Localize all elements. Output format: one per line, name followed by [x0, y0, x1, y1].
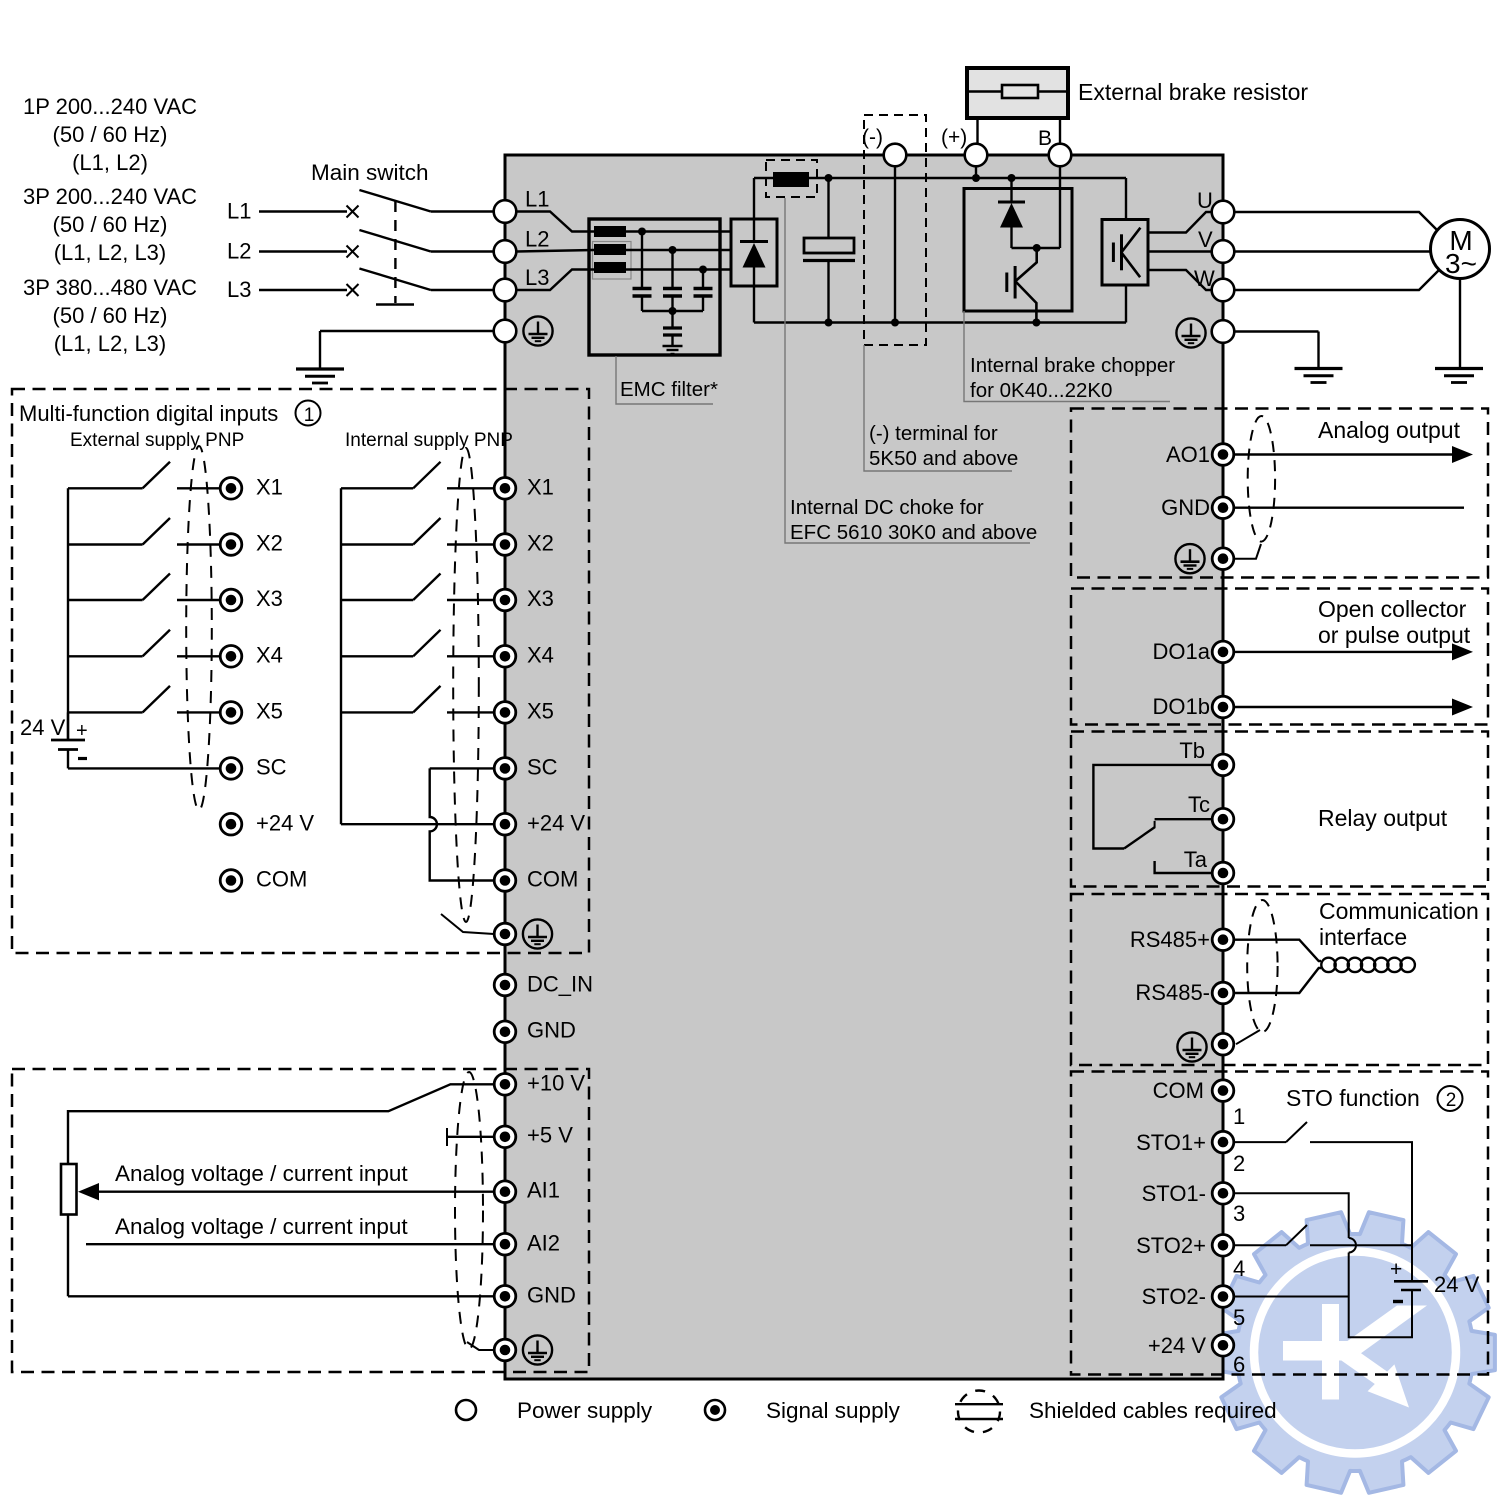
svg-text:RS485+: RS485+ — [1130, 927, 1210, 952]
svg-text:Internal brake chopper: Internal brake chopper — [970, 354, 1175, 377]
svg-text:RS485-: RS485- — [1135, 980, 1210, 1005]
svg-text:COM: COM — [1153, 1078, 1204, 1103]
svg-text:+: + — [76, 720, 88, 742]
svg-text:X5: X5 — [527, 698, 554, 723]
svg-text:B: B — [1038, 127, 1052, 150]
svg-text:V: V — [1198, 227, 1213, 252]
svg-text:Internal DC choke for: Internal DC choke for — [790, 496, 984, 519]
svg-text:2: 2 — [1233, 1151, 1245, 1176]
svg-text:Main switch: Main switch — [311, 160, 429, 185]
svg-text:+24 V: +24 V — [527, 811, 585, 836]
svg-text:AI1: AI1 — [527, 1178, 560, 1203]
svg-text:X1: X1 — [527, 474, 554, 499]
svg-text:(50 / 60 Hz): (50 / 60 Hz) — [53, 122, 168, 147]
svg-text:Analog output: Analog output — [1318, 417, 1461, 443]
svg-text:DO1b: DO1b — [1153, 694, 1210, 719]
svg-text:X3: X3 — [256, 586, 283, 611]
svg-text:X1: X1 — [256, 474, 283, 499]
svg-text:DC_IN: DC_IN — [527, 972, 593, 997]
svg-text:External supply PNP: External supply PNP — [70, 430, 244, 451]
svg-text:Analog voltage / current input: Analog voltage / current input — [115, 1214, 408, 1239]
svg-text:(L1, L2, L3): (L1, L2, L3) — [54, 240, 167, 265]
svg-text:3~: 3~ — [1445, 248, 1477, 279]
svg-text:(-): (-) — [862, 126, 883, 149]
svg-text:(L1, L2): (L1, L2) — [72, 150, 148, 175]
svg-text:X2: X2 — [527, 531, 554, 556]
svg-text:L2: L2 — [525, 227, 549, 252]
svg-text:1: 1 — [1233, 1104, 1245, 1129]
svg-text:Signal supply: Signal supply — [766, 1398, 901, 1423]
svg-text:for 0K40...22K0: for 0K40...22K0 — [970, 379, 1112, 402]
svg-text:STO function: STO function — [1286, 1085, 1420, 1111]
svg-text:STO2-: STO2- — [1142, 1284, 1206, 1309]
svg-text:DO1a: DO1a — [1153, 639, 1211, 664]
svg-text:+5 V: +5 V — [527, 1123, 573, 1148]
svg-text:interface: interface — [1319, 924, 1407, 950]
svg-text:X5: X5 — [256, 698, 283, 723]
svg-text:Internal supply PNP: Internal supply PNP — [345, 430, 513, 451]
svg-text:STO1+: STO1+ — [1136, 1130, 1206, 1155]
svg-text:(+): (+) — [941, 126, 967, 149]
svg-text:+10 V: +10 V — [527, 1071, 585, 1096]
svg-text:Open collector: Open collector — [1318, 596, 1467, 622]
svg-text:X2: X2 — [256, 531, 283, 556]
svg-text:5: 5 — [1233, 1305, 1245, 1330]
svg-text:Power supply: Power supply — [517, 1398, 653, 1423]
svg-text:EMC filter*: EMC filter* — [620, 378, 718, 401]
svg-text:SC: SC — [527, 755, 558, 780]
svg-text:3P 200...240 VAC: 3P 200...240 VAC — [23, 184, 197, 209]
svg-text:Ta: Ta — [1184, 847, 1208, 872]
svg-text:+24 V: +24 V — [256, 811, 314, 836]
svg-text:24 V: 24 V — [20, 715, 66, 740]
svg-text:4: 4 — [1233, 1256, 1245, 1281]
svg-text:Shielded cables required: Shielded cables required — [1029, 1398, 1277, 1423]
svg-text:1: 1 — [304, 405, 315, 426]
svg-text:W: W — [1194, 266, 1215, 291]
svg-text:COM: COM — [527, 867, 578, 892]
svg-text:GND: GND — [527, 1283, 576, 1308]
svg-text:X4: X4 — [527, 642, 554, 667]
svg-text:L2: L2 — [227, 239, 251, 264]
svg-text:+24 V: +24 V — [1148, 1333, 1206, 1358]
svg-text:or pulse output: or pulse output — [1318, 622, 1471, 648]
svg-text:Analog voltage / current input: Analog voltage / current input — [115, 1161, 408, 1186]
svg-text:Relay output: Relay output — [1318, 805, 1448, 831]
svg-text:3P 380...480 VAC: 3P 380...480 VAC — [23, 275, 197, 300]
svg-text:2: 2 — [1446, 1090, 1457, 1111]
svg-text:GND: GND — [527, 1018, 576, 1043]
svg-text:STO1-: STO1- — [1142, 1181, 1206, 1206]
svg-text:X3: X3 — [527, 586, 554, 611]
svg-text:1P 200...240 VAC: 1P 200...240 VAC — [23, 94, 197, 119]
svg-text:SC: SC — [256, 755, 287, 780]
svg-text:EFC 5610 30K0 and above: EFC 5610 30K0 and above — [790, 521, 1037, 544]
svg-text:L1: L1 — [525, 187, 549, 212]
svg-text:L3: L3 — [525, 265, 549, 290]
svg-text:(50 / 60 Hz): (50 / 60 Hz) — [53, 303, 168, 328]
svg-text:External brake resistor: External brake resistor — [1078, 79, 1308, 105]
svg-text:COM: COM — [256, 867, 307, 892]
svg-text:GND: GND — [1161, 495, 1210, 520]
svg-text:STO2+: STO2+ — [1136, 1233, 1206, 1258]
svg-text:X4: X4 — [256, 642, 283, 667]
svg-text:(-) terminal for: (-) terminal for — [869, 422, 998, 445]
svg-text:L3: L3 — [227, 277, 251, 302]
svg-text:5K50 and above: 5K50 and above — [869, 447, 1018, 470]
svg-text:24 V: 24 V — [1434, 1272, 1480, 1297]
svg-text:U: U — [1197, 188, 1213, 213]
svg-text:+: + — [1390, 1258, 1402, 1281]
svg-text:L1: L1 — [227, 199, 251, 224]
svg-text:Multi-function digital inputs: Multi-function digital inputs — [19, 401, 278, 426]
svg-text:AI2: AI2 — [527, 1231, 560, 1256]
svg-text:3: 3 — [1233, 1201, 1245, 1226]
svg-text:(50 / 60 Hz): (50 / 60 Hz) — [53, 212, 168, 237]
svg-text:Tb: Tb — [1179, 738, 1205, 763]
svg-text:(L1, L2, L3): (L1, L2, L3) — [54, 331, 167, 356]
svg-text:AO1: AO1 — [1166, 442, 1210, 467]
svg-text:Communication: Communication — [1319, 898, 1479, 924]
svg-text:6: 6 — [1233, 1352, 1245, 1377]
svg-text:Tc: Tc — [1188, 792, 1210, 817]
